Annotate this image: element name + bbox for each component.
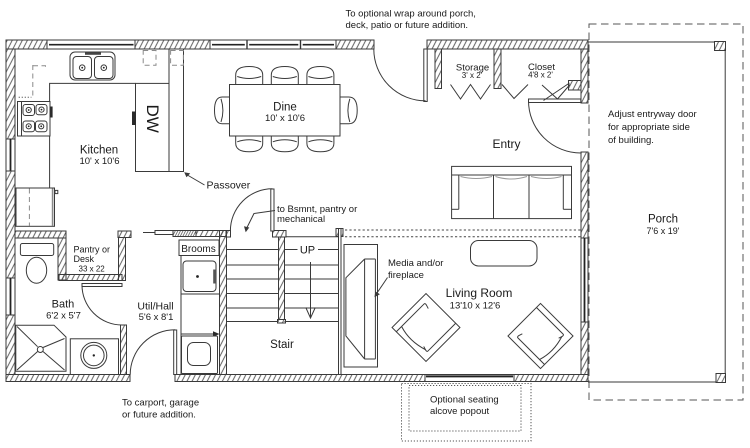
svg-text:7'6 x 19': 7'6 x 19' (647, 226, 680, 236)
svg-text:Porch: Porch (648, 214, 678, 226)
svg-text:of building.: of building. (608, 135, 654, 146)
svg-text:Bath: Bath (52, 299, 75, 311)
svg-text:33 x 22: 33 x 22 (79, 265, 106, 274)
svg-text:5'6 x 8'1: 5'6 x 8'1 (139, 312, 174, 323)
svg-text:3' x 2': 3' x 2' (462, 71, 483, 80)
svg-text:Pantry or: Pantry or (74, 244, 111, 254)
svg-text:or future addition.: or future addition. (122, 410, 196, 421)
svg-text:To carport, garage: To carport, garage (122, 398, 199, 409)
svg-text:Desk: Desk (74, 254, 95, 264)
svg-text:Living Room: Living Room (446, 286, 513, 300)
svg-text:4'8 x 2': 4'8 x 2' (528, 71, 553, 80)
svg-text:Kitchen: Kitchen (80, 145, 118, 157)
svg-text:Optional seating: Optional seating (430, 395, 499, 406)
svg-text:mechanical: mechanical (277, 214, 325, 225)
svg-text:fireplace: fireplace (388, 270, 424, 281)
svg-text:To optional wrap around porch,: To optional wrap around porch, (346, 9, 476, 20)
svg-text:Brooms: Brooms (181, 244, 215, 255)
svg-text:10' x 10'6: 10' x 10'6 (79, 156, 119, 167)
svg-text:13'10 x 12'6: 13'10 x 12'6 (450, 301, 501, 312)
svg-text:Adjust entryway door: Adjust entryway door (608, 109, 697, 120)
svg-text:deck, patio or future addition: deck, patio or future addition. (346, 20, 469, 31)
svg-text:Dine: Dine (273, 102, 297, 114)
svg-text:6'2 x 5'7: 6'2 x 5'7 (46, 311, 81, 322)
svg-text:alcove popout: alcove popout (430, 406, 490, 417)
svg-text:for appropriate side: for appropriate side (608, 122, 690, 133)
svg-text:Entry: Entry (492, 137, 520, 151)
svg-text:UP: UP (300, 245, 315, 257)
svg-text:10' x 10'6: 10' x 10'6 (265, 113, 305, 124)
svg-text:DW: DW (143, 105, 162, 133)
svg-text:Stair: Stair (270, 339, 294, 351)
svg-text:Media and/or: Media and/or (388, 258, 443, 269)
svg-text:Util/Hall: Util/Hall (137, 301, 173, 313)
svg-text:Passover: Passover (207, 180, 251, 192)
